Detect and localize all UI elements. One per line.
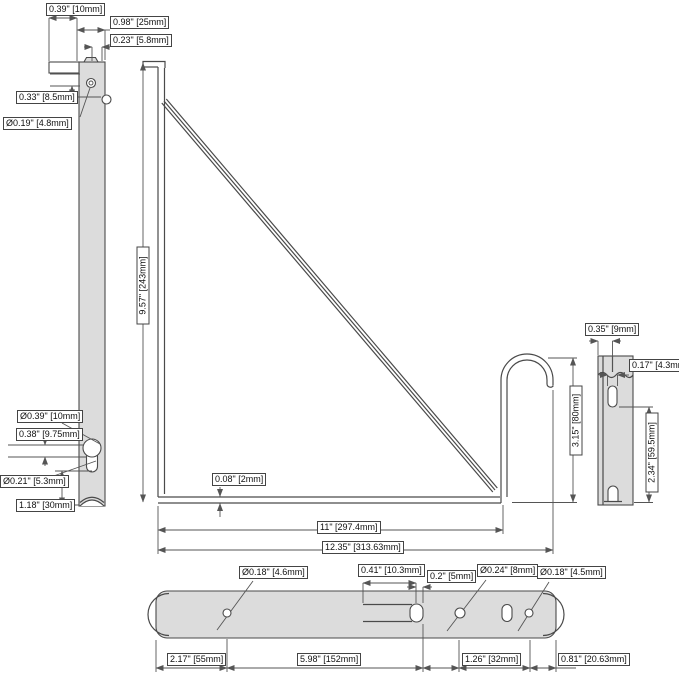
- brace-diagonal: [164, 101, 495, 490]
- dim-hook-height: 3.15" [80mm]: [570, 386, 583, 456]
- edge-notch: [102, 95, 111, 104]
- dim-notch-offset: 0.33" [8.5mm]: [16, 91, 78, 104]
- dim-bar-hole1-dia: Ø0.18" [4.6mm]: [239, 566, 308, 579]
- bar-hole-1: [223, 609, 231, 617]
- dim-bar-right-offset: 0.81" [20.63mm]: [558, 653, 630, 666]
- side-bottom-slot: [608, 486, 618, 501]
- dim-keyhole-dia: Ø0.39" [10mm]: [17, 410, 83, 423]
- dim-side-slot-width: 0.17" [4.3mm]: [629, 359, 679, 372]
- dim-bar-hole2-dia: Ø0.24" [8mm]: [477, 564, 538, 577]
- dim-bar-slot-width: 0.2" [5mm]: [427, 570, 476, 583]
- hook: [501, 354, 553, 503]
- side-slot: [608, 386, 617, 407]
- dim-keyhole-bottom-offset: 1.18" [30mm]: [16, 499, 75, 512]
- dim-bar-mid-span: 5.98" [152mm]: [297, 653, 361, 666]
- dim-top-hole-dia: Ø0.19" [4.8mm]: [3, 117, 72, 130]
- dim-bar-slot-length: 0.41" [10.3mm]: [358, 564, 425, 577]
- technical-drawing: 0.39" [10mm] 0.98" [25mm] 0.23" [5.8mm] …: [0, 0, 679, 676]
- dim-top-tab-width: 0.39" [10mm]: [46, 3, 105, 16]
- bar-slot-end: [410, 604, 423, 622]
- dim-top-width: 0.98" [25mm]: [110, 16, 169, 29]
- dim-keyhole-slot-dia: Ø0.21" [5.3mm]: [0, 475, 69, 488]
- keyhole-circle: [83, 439, 101, 457]
- bar-oval-hole: [502, 605, 512, 622]
- dim-bar-hole-span: 1.26" [32mm]: [462, 653, 521, 666]
- top-tab: [49, 62, 79, 73]
- side-view: [598, 356, 633, 505]
- dim-bar-left-offset: 2.17" [55mm]: [167, 653, 226, 666]
- dim-channel-width: 0.23" [5.8mm]: [110, 34, 172, 47]
- top-hole: [87, 79, 96, 88]
- dim-bracket-height: 9.57" [243mm]: [137, 247, 150, 325]
- bottom-view-bar: [148, 580, 564, 638]
- dim-side-lower-height: 2.34" [59.5mm]: [646, 413, 659, 493]
- front-view-bracket: [143, 62, 553, 504]
- bar-hole-2: [455, 608, 465, 618]
- dim-inner-length: 11" [297.4mm]: [317, 521, 381, 534]
- dim-material-thickness: 0.08" [2mm]: [212, 473, 266, 486]
- bar-hole-3: [525, 609, 533, 617]
- dim-bar-hole3-dia: Ø0.18" [4.5mm]: [537, 566, 606, 579]
- dim-total-length: 12.35" [313.63mm]: [322, 541, 404, 554]
- dim-side-slot-offset: 0.35" [9mm]: [585, 323, 639, 336]
- dim-keyhole-pitch: 0.38" [9.75mm]: [16, 428, 83, 441]
